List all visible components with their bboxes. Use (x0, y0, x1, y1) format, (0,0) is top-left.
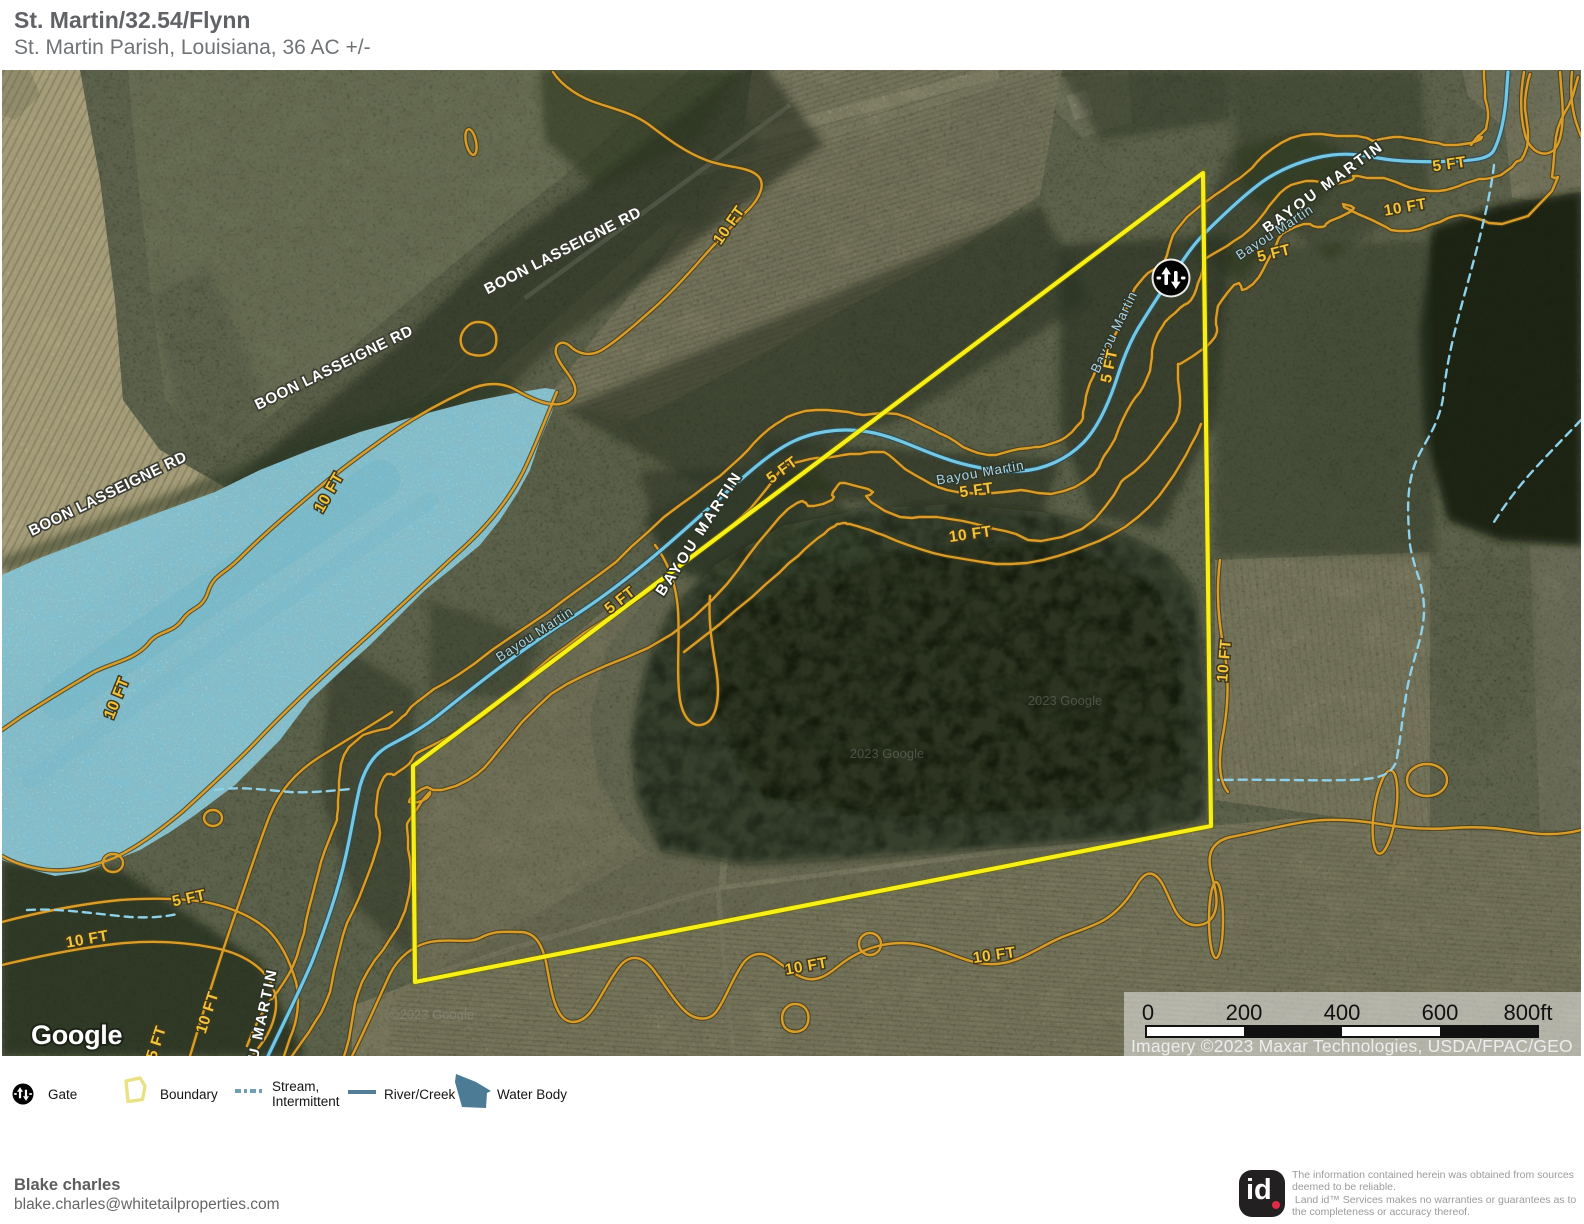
svg-text:800ft: 800ft (1504, 1000, 1553, 1025)
svg-text:2023 Google: 2023 Google (850, 746, 924, 761)
svg-text:600: 600 (1422, 1000, 1459, 1025)
svg-text:©2023 Google: ©2023 Google (390, 1007, 474, 1022)
svg-text:2023 Google: 2023 Google (1028, 693, 1102, 708)
svg-text:Imagery ©2023 Maxar Technologi: Imagery ©2023 Maxar Technologies, USDA/F… (1131, 1036, 1573, 1056)
svg-text:0: 0 (1142, 1000, 1154, 1025)
svg-text:400: 400 (1324, 1000, 1361, 1025)
svg-text:Google: Google (31, 1020, 122, 1050)
svg-text:200: 200 (1226, 1000, 1263, 1025)
